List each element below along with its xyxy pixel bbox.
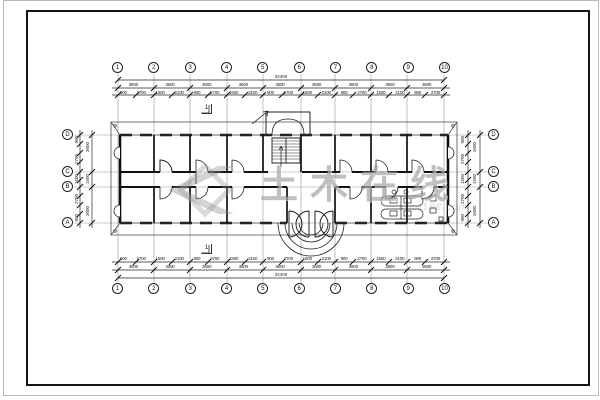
dim-or-grid-label: 2700	[284, 90, 293, 95]
dim-or-grid-label: 10	[439, 62, 450, 73]
dim-bottom-majors: 360036003600360036003600360036003600	[115, 264, 445, 269]
dim-left-details: 900270015002700900	[74, 131, 79, 227]
dim-or-grid-label: 1	[112, 283, 123, 294]
dim-or-grid-label: 3600	[349, 82, 358, 87]
dim-right-majors: 360015003600	[472, 131, 477, 227]
grid-bubble-right-b: B	[488, 181, 499, 192]
dim-or-grid-label: 2700	[431, 90, 440, 95]
dim-or-grid-label: 900	[74, 214, 79, 222]
dim-or-grid-label: 5	[257, 283, 268, 294]
stair-icon	[272, 138, 300, 167]
dim-or-grid-label: 900	[120, 256, 127, 261]
dim-or-grid-label: 900	[460, 136, 465, 144]
dim-right-details: 900270015002700900	[460, 131, 465, 227]
vestibule-icon	[266, 112, 310, 135]
dim-bottom-details: 9002700150021009002700150021009002700150…	[115, 256, 445, 261]
dim-or-grid-label: 900	[341, 256, 348, 261]
dim-or-grid-label: 3600	[312, 264, 321, 269]
dim-or-grid-label: 6	[294, 283, 305, 294]
dim-or-grid-label: 900	[414, 90, 421, 95]
dim-or-grid-label: 1500	[229, 90, 238, 95]
drawing-sheet: 12345678910 12345678910 D C B A D C B A …	[0, 0, 600, 400]
dim-or-grid-label: 1500	[74, 174, 79, 184]
dim-or-grid-label: 8	[366, 283, 377, 294]
grid-bubble-right-d: D	[488, 129, 499, 140]
grid-bubble-left-b: B	[62, 181, 73, 192]
grid-bubble-left-a: A	[62, 217, 73, 228]
dim-or-grid-label: 900	[120, 90, 127, 95]
dimension-lines	[80, 80, 480, 278]
dim-or-grid-label: 2700	[460, 194, 465, 204]
dim-or-grid-label: 2700	[137, 90, 146, 95]
dim-or-grid-label: 7	[330, 62, 341, 73]
dim-or-grid-label: 900	[414, 256, 421, 261]
dim-or-grid-label: 2	[148, 62, 159, 73]
side-window-icons	[114, 147, 454, 217]
dim-or-grid-label: 2100	[248, 90, 257, 95]
dim-or-grid-label: 3600	[275, 82, 284, 87]
dim-or-grid-label: 2700	[431, 256, 440, 261]
dim-or-grid-label: 3600	[275, 264, 284, 269]
dim-or-grid-label: 7	[330, 283, 341, 294]
grid-bubble-left-c: C	[62, 166, 73, 177]
dim-or-grid-label: 3600	[202, 82, 211, 87]
dim-or-grid-label: 3600	[385, 82, 394, 87]
dim-or-grid-label: 2700	[137, 256, 146, 261]
dim-or-grid-label: 900	[460, 214, 465, 222]
dim-or-grid-label: 3600	[202, 264, 211, 269]
section-mark-top: 1	[202, 104, 212, 114]
dim-or-grid-label: 3600	[312, 82, 321, 87]
dim-or-grid-label: 3600	[422, 264, 431, 269]
entrance-steps-icon	[278, 223, 344, 256]
dim-or-grid-label: 2700	[210, 256, 219, 261]
dim-or-grid-label: 2700	[357, 256, 366, 261]
dim-or-grid-label: 2100	[322, 256, 331, 261]
dim-or-grid-label: 2700	[460, 154, 465, 164]
dim-or-grid-label: 1500	[472, 174, 477, 184]
dim-or-grid-label: 4	[221, 62, 232, 73]
dim-or-grid-label: 3600	[422, 82, 431, 87]
dim-top-details: 9002700150021009002700150021009002700150…	[115, 90, 445, 95]
dim-or-grid-label: 9	[403, 283, 414, 294]
section-line-marks	[201, 105, 268, 253]
dim-or-grid-label: 2700	[357, 90, 366, 95]
dim-or-grid-label: 3600	[239, 82, 248, 87]
dim-or-grid-label: 3600	[129, 264, 138, 269]
dim-or-grid-label: 1500	[460, 174, 465, 184]
dim-or-grid-label: 1500	[229, 256, 238, 261]
dim-or-grid-label: 2700	[74, 194, 79, 204]
dim-or-grid-label: 2100	[322, 90, 331, 95]
dim-or-grid-label: 9	[403, 62, 414, 73]
dim-or-grid-label: 2100	[395, 90, 404, 95]
watermark-logo-icon	[168, 166, 234, 214]
dim-bottom-overall: 32400	[118, 272, 444, 277]
grid-bubble-left-d: D	[62, 129, 73, 140]
dim-left-majors: 360015003600	[85, 131, 90, 227]
dim-or-grid-label: 900	[74, 136, 79, 144]
dim-top-majors: 360036003600360036003600360036003600	[115, 82, 445, 87]
dim-or-grid-label: 1500	[156, 256, 165, 261]
dimension-ticks	[77, 77, 483, 281]
dim-or-grid-label: 3600	[85, 206, 90, 216]
dim-or-grid-label: 10	[439, 283, 450, 294]
dim-or-grid-label: 3600	[165, 82, 174, 87]
dim-or-grid-label: 1500	[376, 90, 385, 95]
dim-or-grid-label: 3	[185, 62, 196, 73]
dim-or-grid-label: 3600	[472, 206, 477, 216]
exterior-walls	[120, 135, 448, 223]
dim-or-grid-label: 3600	[239, 264, 248, 269]
dim-or-grid-label: 1500	[376, 256, 385, 261]
dim-or-grid-label: 3600	[472, 142, 477, 152]
grid-bubble-right-a: A	[488, 217, 499, 228]
dim-or-grid-label: 1500	[156, 90, 165, 95]
dim-or-grid-label: 900	[267, 256, 274, 261]
corridor-walls	[120, 172, 448, 187]
dim-or-grid-label: 4	[221, 283, 232, 294]
dim-or-grid-label: 900	[193, 256, 200, 261]
dim-or-grid-label: 1	[112, 62, 123, 73]
grid-lines	[74, 74, 488, 284]
grid-bubbles-bottom: 12345678910	[112, 283, 450, 294]
grid-bubble-right-c: C	[488, 166, 499, 177]
dim-or-grid-label: 3600	[165, 264, 174, 269]
dim-or-grid-label: 6	[294, 62, 305, 73]
floor-plan-drawing	[0, 0, 600, 400]
dim-or-grid-label: 3600	[349, 264, 358, 269]
section-mark-bottom: 1	[202, 244, 212, 254]
dim-or-grid-label: 1500	[85, 174, 90, 184]
dim-or-grid-label: 3600	[129, 82, 138, 87]
entrance-doors-icon	[289, 211, 333, 237]
dim-or-grid-label: 3600	[85, 142, 90, 152]
dim-or-grid-label: 1500	[303, 90, 312, 95]
dim-or-grid-label: 2	[148, 283, 159, 294]
dim-or-grid-label: 2100	[248, 256, 257, 261]
dim-or-grid-label: 2100	[174, 256, 183, 261]
dim-or-grid-label: 900	[341, 90, 348, 95]
dim-or-grid-label: 3	[185, 283, 196, 294]
dim-or-grid-label: 900	[267, 90, 274, 95]
dim-or-grid-label: 2100	[174, 90, 183, 95]
canopy-outline	[111, 122, 457, 235]
dim-or-grid-label: 2700	[210, 90, 219, 95]
dim-or-grid-label: 900	[193, 90, 200, 95]
dim-or-grid-label: 2700	[284, 256, 293, 261]
dim-or-grid-label: 8	[366, 62, 377, 73]
grid-bubbles-top: 12345678910	[112, 62, 450, 73]
dim-or-grid-label: 2700	[74, 154, 79, 164]
dim-or-grid-label: 1500	[303, 256, 312, 261]
toilet-fixtures-icon	[381, 190, 443, 221]
dim-top-overall: 32400	[118, 74, 444, 79]
dim-or-grid-label: 5	[257, 62, 268, 73]
dim-or-grid-label: 2100	[395, 256, 404, 261]
dim-or-grid-label: 3600	[385, 264, 394, 269]
